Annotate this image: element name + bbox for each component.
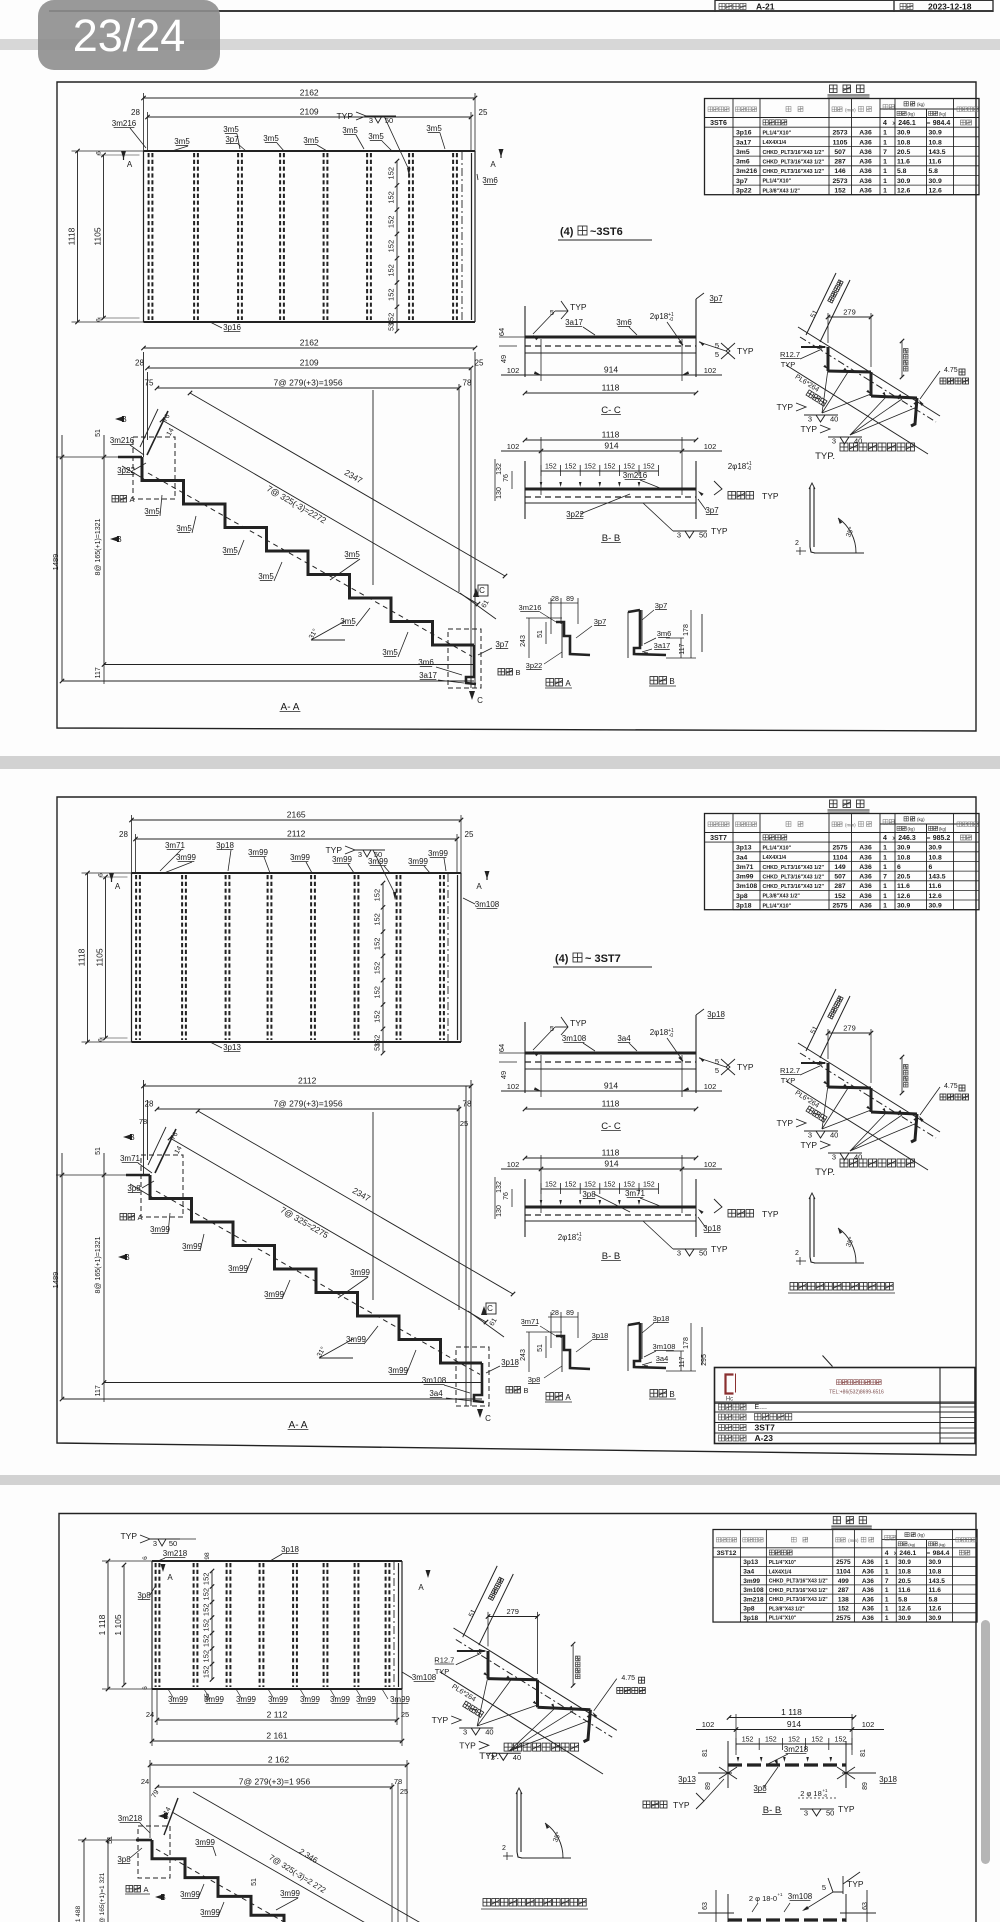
- svg-text:152: 152: [545, 1182, 557, 1189]
- svg-text:3m6: 3m6: [418, 658, 434, 667]
- svg-text:A36: A36: [862, 1578, 874, 1585]
- svg-text:30.9: 30.9: [928, 1615, 941, 1622]
- svg-text:(kg): (kg): [939, 827, 947, 832]
- svg-text:102: 102: [507, 366, 520, 375]
- svg-text:3: 3: [808, 415, 812, 424]
- svg-text:6: 6: [142, 1556, 149, 1560]
- svg-text:152: 152: [387, 264, 396, 277]
- svg-text:TYP: TYP: [781, 1076, 796, 1085]
- svg-text:CHKD_PLT3/16"X43 1/2": CHKD_PLT3/16"X43 1/2": [763, 865, 825, 871]
- svg-text:24: 24: [141, 1777, 149, 1786]
- svg-text:53: 53: [375, 1043, 382, 1051]
- svg-text:138: 138: [838, 1596, 849, 1603]
- svg-text:28: 28: [551, 1310, 559, 1317]
- svg-text:3a4: 3a4: [429, 1389, 443, 1398]
- svg-text:8@ 165(+1)=1321: 8@ 165(+1)=1321: [95, 518, 102, 575]
- svg-text:5: 5: [715, 350, 719, 359]
- svg-text:TYP: TYP: [762, 1209, 779, 1219]
- svg-text:A36: A36: [859, 893, 872, 900]
- svg-text:3: 3: [677, 1249, 681, 1258]
- svg-text:25: 25: [479, 108, 488, 117]
- svg-text:(4): (4): [555, 953, 569, 965]
- svg-text:4.75: 4.75: [944, 367, 958, 374]
- svg-text:A36: A36: [862, 1615, 874, 1622]
- svg-text:1118: 1118: [602, 1099, 620, 1109]
- svg-text:3p13: 3p13: [743, 1559, 758, 1566]
- svg-text:~3ST6: ~3ST6: [590, 226, 623, 238]
- svg-text:3m108: 3m108: [412, 1673, 437, 1682]
- svg-text:TYP: TYP: [762, 491, 779, 501]
- svg-text:3m5: 3m5: [174, 137, 190, 146]
- svg-text:TYP: TYP: [673, 1800, 690, 1810]
- svg-text:40: 40: [485, 1728, 493, 1737]
- svg-text:61: 61: [489, 1317, 499, 1327]
- svg-text:3m108: 3m108: [653, 1342, 676, 1351]
- svg-text:3m99: 3m99: [368, 857, 389, 866]
- svg-text:1: 1: [883, 893, 887, 900]
- svg-text:(kg): (kg): [939, 112, 947, 117]
- svg-text:3: 3: [832, 1153, 836, 1162]
- svg-text:TYP.: TYP.: [815, 451, 835, 462]
- svg-text:A: A: [115, 882, 121, 891]
- svg-text:3m99: 3m99: [736, 874, 754, 881]
- svg-text:(kg): (kg): [939, 1542, 947, 1547]
- svg-text:20.5: 20.5: [897, 149, 910, 156]
- svg-text:24: 24: [146, 1710, 154, 1719]
- svg-text:CHKD_PLT3/16"X43 1/2": CHKD_PLT3/16"X43 1/2": [763, 159, 825, 165]
- svg-text:TYP: TYP: [800, 424, 817, 434]
- svg-text:30.9: 30.9: [929, 845, 942, 852]
- svg-text:3m218: 3m218: [118, 1814, 143, 1823]
- svg-text:152: 152: [387, 191, 396, 204]
- svg-text:3p7: 3p7: [736, 178, 748, 185]
- svg-text:152: 152: [604, 1182, 616, 1189]
- svg-text:3p7: 3p7: [655, 601, 668, 610]
- svg-text:CHKD_PLT3/16"X43 1/2": CHKD_PLT3/16"X43 1/2": [769, 1597, 829, 1603]
- svg-text:149: 149: [834, 864, 846, 871]
- svg-text:102: 102: [704, 366, 717, 375]
- svg-text:3m6: 3m6: [736, 159, 750, 166]
- svg-text:2109: 2109: [300, 358, 319, 368]
- svg-text:2φ18: 2φ18: [728, 462, 747, 471]
- svg-text:A36: A36: [862, 1596, 874, 1603]
- svg-text:-0: -0: [669, 317, 674, 323]
- svg-text:76: 76: [503, 474, 510, 482]
- svg-text:25: 25: [465, 830, 474, 839]
- svg-text:3m108: 3m108: [743, 1587, 764, 1594]
- svg-text:3m108: 3m108: [562, 1034, 587, 1043]
- svg-text:3m99: 3m99: [204, 1695, 225, 1704]
- svg-text:143.5: 143.5: [928, 1578, 945, 1585]
- svg-text:3m5: 3m5: [344, 550, 360, 559]
- svg-text:CHKD_PLT3/16"X43 1/2": CHKD_PLT3/16"X43 1/2": [763, 884, 825, 890]
- svg-text:3m99: 3m99: [248, 848, 269, 857]
- svg-text:3ST7: 3ST7: [755, 1423, 776, 1433]
- svg-text:3m6: 3m6: [657, 629, 672, 638]
- svg-text:152: 152: [202, 1619, 211, 1632]
- svg-text:3m99: 3m99: [300, 1695, 321, 1704]
- svg-text:50: 50: [699, 1249, 707, 1258]
- svg-text:TYP: TYP: [847, 1879, 864, 1889]
- svg-text:152: 152: [373, 1010, 382, 1023]
- svg-text:3m108: 3m108: [422, 1376, 447, 1385]
- svg-text:(4): (4): [560, 226, 574, 238]
- svg-text:3m99: 3m99: [346, 1335, 367, 1344]
- svg-text:50: 50: [826, 1809, 834, 1818]
- svg-text:(mm): (mm): [845, 108, 856, 113]
- svg-text:3m218: 3m218: [163, 1549, 188, 1558]
- svg-text:3ST12: 3ST12: [717, 1550, 737, 1557]
- svg-text:3m5: 3m5: [303, 136, 319, 145]
- svg-text:1105: 1105: [95, 948, 105, 967]
- svg-text:63: 63: [862, 1902, 869, 1910]
- svg-text:B: B: [669, 1390, 674, 1399]
- svg-text:7@ 279(+3)=1 956: 7@ 279(+3)=1 956: [239, 1777, 311, 1787]
- svg-text:3a17: 3a17: [736, 139, 751, 146]
- svg-text:8@ 165(+1)=1 321: 8@ 165(+1)=1 321: [99, 1872, 106, 1922]
- svg-text:102: 102: [702, 1720, 715, 1729]
- svg-text:246.1: 246.1: [898, 120, 916, 127]
- svg-text:3m5: 3m5: [340, 617, 356, 626]
- svg-text:3a17: 3a17: [419, 671, 437, 680]
- svg-text:A36: A36: [859, 883, 872, 890]
- svg-text:178: 178: [683, 624, 690, 636]
- svg-text:8@ 165(+1)=1321: 8@ 165(+1)=1321: [95, 1236, 102, 1293]
- svg-text:A36: A36: [862, 1559, 874, 1566]
- svg-text:75: 75: [145, 379, 154, 388]
- svg-text:1104: 1104: [833, 854, 848, 861]
- svg-text:A36: A36: [862, 1569, 874, 1576]
- svg-text:(kg): (kg): [908, 1542, 916, 1547]
- svg-text:3p7: 3p7: [594, 617, 607, 626]
- svg-text:5.8: 5.8: [929, 168, 939, 175]
- svg-text:12.6: 12.6: [929, 893, 942, 900]
- svg-text:1118: 1118: [602, 430, 620, 440]
- svg-text:3m71: 3m71: [736, 864, 754, 871]
- svg-text:30.9: 30.9: [898, 1559, 911, 1566]
- svg-text:-0: -0: [823, 1793, 827, 1798]
- svg-text:C: C: [479, 586, 485, 595]
- svg-text:3: 3: [369, 116, 373, 125]
- svg-text:3m99: 3m99: [408, 857, 429, 866]
- svg-text:=: =: [927, 1550, 931, 1557]
- svg-text:3p18: 3p18: [743, 1615, 758, 1622]
- svg-text:3m99: 3m99: [332, 855, 353, 864]
- svg-text:A: A: [490, 160, 496, 169]
- svg-text:12.6: 12.6: [897, 188, 910, 195]
- svg-text:C: C: [487, 1304, 493, 1313]
- svg-text:x: x: [892, 835, 896, 842]
- svg-text:3: 3: [808, 1131, 812, 1140]
- svg-text:12.6: 12.6: [898, 1606, 911, 1613]
- svg-text:x: x: [892, 120, 896, 127]
- svg-text:10.8: 10.8: [929, 854, 942, 861]
- svg-text:40: 40: [854, 1153, 862, 1162]
- svg-text:TYP: TYP: [781, 360, 796, 369]
- svg-text:3m108: 3m108: [475, 900, 500, 909]
- svg-text:152: 152: [765, 1737, 777, 1744]
- svg-text:3p8: 3p8: [736, 893, 748, 900]
- svg-text:TYP: TYP: [120, 1531, 137, 1541]
- svg-text:51: 51: [537, 1344, 544, 1352]
- svg-text:C: C: [485, 1414, 491, 1423]
- svg-text:3: 3: [804, 1809, 808, 1818]
- svg-text:PL1/4"X10": PL1/4"X10": [769, 1616, 797, 1622]
- svg-text:3m216: 3m216: [112, 119, 137, 128]
- svg-text:TYP: TYP: [325, 845, 342, 855]
- svg-text:TYP: TYP: [711, 1244, 728, 1254]
- svg-text:3p7: 3p7: [225, 135, 239, 144]
- svg-text:143.5: 143.5: [929, 149, 946, 156]
- svg-text:B: B: [163, 1812, 168, 1821]
- svg-text:3m108: 3m108: [788, 1892, 813, 1901]
- svg-text:A36: A36: [859, 168, 872, 175]
- svg-text:TYP: TYP: [737, 346, 754, 356]
- svg-text:51: 51: [537, 630, 544, 638]
- svg-text:PL1/4"X10": PL1/4"X10": [763, 179, 792, 185]
- svg-text:7@ 279(+3)=1956: 7@ 279(+3)=1956: [273, 1099, 342, 1109]
- svg-text:1 488: 1 488: [75, 1905, 82, 1922]
- svg-text:3m216: 3m216: [110, 436, 135, 445]
- svg-text:3p13: 3p13: [678, 1775, 696, 1784]
- svg-text:30.9: 30.9: [898, 1615, 911, 1622]
- svg-text:2φ18: 2φ18: [558, 1233, 577, 1242]
- svg-text:3m218: 3m218: [743, 1596, 764, 1603]
- svg-text:12.6: 12.6: [897, 893, 910, 900]
- svg-text:7@ 325(-3)=2272: 7@ 325(-3)=2272: [265, 483, 328, 525]
- svg-text:4: 4: [883, 120, 887, 127]
- svg-text:1: 1: [883, 864, 887, 871]
- svg-text:152: 152: [623, 464, 635, 471]
- svg-text:89: 89: [566, 1310, 574, 1317]
- svg-text:6: 6: [96, 151, 103, 155]
- svg-text:152: 152: [604, 464, 616, 471]
- svg-text:(kg): (kg): [917, 817, 925, 822]
- svg-text:3m5: 3m5: [176, 524, 192, 533]
- svg-text:4.75: 4.75: [944, 1083, 958, 1090]
- svg-text:152: 152: [788, 1737, 800, 1744]
- svg-text:B: B: [669, 677, 674, 686]
- svg-text:3p7: 3p7: [495, 640, 509, 649]
- svg-text:984.4: 984.4: [933, 1550, 950, 1557]
- svg-text:A: A: [137, 1213, 142, 1222]
- svg-text:3p13: 3p13: [736, 845, 752, 852]
- svg-text:152: 152: [742, 1737, 754, 1744]
- svg-text:CHKD_PLT3/16"X43 1/2": CHKD_PLT3/16"X43 1/2": [763, 150, 825, 156]
- svg-text:10.8: 10.8: [897, 854, 910, 861]
- svg-text:TYP: TYP: [570, 302, 587, 312]
- svg-text:89: 89: [566, 596, 574, 603]
- svg-text:1104: 1104: [836, 1569, 851, 1576]
- svg-text:12.6: 12.6: [929, 188, 942, 195]
- svg-text:6: 6: [96, 318, 103, 322]
- svg-text:(kg): (kg): [908, 827, 916, 832]
- svg-text:3m99: 3m99: [195, 1838, 216, 1847]
- svg-text:TYP: TYP: [737, 1062, 754, 1072]
- svg-text:7: 7: [883, 149, 887, 156]
- svg-text:2165: 2165: [287, 810, 306, 820]
- svg-text:3p8: 3p8: [117, 1855, 131, 1864]
- svg-text:TYP: TYP: [570, 1018, 587, 1028]
- svg-text:20.5: 20.5: [898, 1578, 911, 1585]
- svg-text:A36: A36: [859, 130, 872, 137]
- svg-text:914: 914: [604, 1159, 618, 1169]
- svg-text:3a17: 3a17: [565, 318, 583, 327]
- svg-text:152: 152: [387, 216, 396, 229]
- svg-text:507: 507: [834, 874, 846, 881]
- svg-text:3p18: 3p18: [592, 1331, 609, 1340]
- svg-text:2162: 2162: [300, 88, 319, 98]
- svg-text:246.3: 246.3: [898, 835, 916, 842]
- svg-text:146: 146: [834, 168, 846, 175]
- svg-text:3p7: 3p7: [709, 294, 723, 303]
- svg-text:TYP: TYP: [432, 1715, 449, 1725]
- svg-text:81: 81: [860, 1749, 867, 1757]
- svg-text:102: 102: [704, 1160, 717, 1169]
- svg-text:3: 3: [358, 850, 362, 859]
- svg-text:10.8: 10.8: [897, 139, 910, 146]
- svg-text:-0: -0: [577, 1237, 582, 1243]
- svg-text:28: 28: [551, 596, 559, 603]
- svg-text:10.8: 10.8: [929, 139, 942, 146]
- svg-text:A: A: [143, 1885, 148, 1894]
- svg-text:2573: 2573: [832, 178, 847, 185]
- svg-text:5.8: 5.8: [898, 1596, 907, 1603]
- svg-text:3p13: 3p13: [223, 1043, 241, 1052]
- svg-text:3p18: 3p18: [216, 841, 234, 850]
- svg-text:279: 279: [506, 1607, 519, 1616]
- svg-text:3p18: 3p18: [736, 903, 752, 910]
- svg-text:3m5: 3m5: [736, 149, 750, 156]
- svg-text:E....: E....: [755, 1404, 768, 1411]
- svg-text:40: 40: [830, 1131, 838, 1140]
- svg-text:1: 1: [883, 854, 887, 861]
- svg-text:TYP.: TYP.: [479, 1751, 499, 1762]
- svg-text:152: 152: [373, 986, 382, 999]
- svg-text:28: 28: [145, 1100, 154, 1109]
- svg-text:3m99: 3m99: [330, 1695, 351, 1704]
- svg-text:28: 28: [131, 108, 140, 117]
- svg-text:40: 40: [513, 1753, 521, 1762]
- svg-text:3m71: 3m71: [625, 1189, 646, 1198]
- svg-text:3p18: 3p18: [281, 1545, 299, 1554]
- svg-text:1105: 1105: [833, 139, 848, 146]
- svg-text:2575: 2575: [832, 845, 847, 852]
- svg-text:117: 117: [95, 1385, 102, 1396]
- svg-text:3m99: 3m99: [176, 853, 197, 862]
- svg-text:TYP: TYP: [776, 402, 793, 412]
- svg-text:507: 507: [834, 149, 846, 156]
- svg-text:4.75: 4.75: [621, 1675, 635, 1682]
- svg-text:1: 1: [883, 168, 887, 175]
- svg-text:132: 132: [496, 1181, 503, 1193]
- svg-text:152: 152: [834, 188, 846, 195]
- svg-text:B: B: [116, 535, 121, 544]
- svg-text:(kg): (kg): [917, 1533, 925, 1538]
- svg-text:279: 279: [843, 308, 856, 317]
- svg-text:3a17: 3a17: [654, 641, 671, 650]
- svg-text:3a4: 3a4: [743, 1569, 754, 1576]
- svg-text:117: 117: [95, 667, 102, 678]
- svg-text:2 φ 18-0: 2 φ 18-0: [749, 1894, 777, 1903]
- svg-text:3p8: 3p8: [743, 1606, 755, 1613]
- svg-text:A: A: [127, 160, 133, 169]
- svg-text:14: 14: [166, 427, 176, 437]
- svg-text:1: 1: [885, 1559, 889, 1566]
- svg-text:914: 914: [604, 1081, 618, 1091]
- svg-text:L4X4X1/4: L4X4X1/4: [769, 1569, 792, 1575]
- svg-text:152: 152: [811, 1737, 823, 1744]
- svg-text:3p8: 3p8: [127, 1184, 141, 1193]
- svg-text:2φ18: 2φ18: [650, 1028, 669, 1037]
- svg-text:1: 1: [883, 178, 887, 185]
- svg-text:CHKD_PLT3/16"X43 1/2": CHKD_PLT3/16"X43 1/2": [763, 169, 825, 175]
- svg-text:A36: A36: [859, 149, 872, 156]
- svg-text:3m5: 3m5: [263, 134, 279, 143]
- svg-text:A: A: [167, 1573, 173, 1582]
- svg-text:3m216: 3m216: [623, 471, 648, 480]
- svg-text:152: 152: [202, 1666, 211, 1679]
- svg-text:x: x: [894, 1550, 898, 1557]
- svg-text:30.9: 30.9: [929, 130, 942, 137]
- svg-text:2: 2: [502, 1845, 506, 1852]
- svg-text:1: 1: [883, 883, 887, 890]
- svg-text:R12.7: R12.7: [780, 1066, 800, 1075]
- svg-text:152: 152: [834, 893, 846, 900]
- svg-text:3p16: 3p16: [736, 130, 752, 137]
- svg-text:CHKD_PLT3/16"X43 1/2": CHKD_PLT3/16"X43 1/2": [769, 1579, 829, 1585]
- svg-text:3m99: 3m99: [280, 1889, 301, 1898]
- svg-text:3p18: 3p18: [501, 1358, 519, 1367]
- svg-text:3m5: 3m5: [342, 126, 358, 135]
- svg-text:(kg): (kg): [917, 102, 925, 107]
- svg-text:1: 1: [883, 845, 887, 852]
- svg-text:TYP: TYP: [776, 1118, 793, 1128]
- svg-text:152: 152: [373, 938, 382, 951]
- svg-text:499: 499: [838, 1578, 849, 1585]
- svg-text:3m71: 3m71: [165, 841, 186, 850]
- svg-text:152: 152: [584, 1182, 596, 1189]
- svg-text:2575: 2575: [836, 1615, 851, 1622]
- svg-text:2 112: 2 112: [267, 1710, 288, 1720]
- svg-text:3p22: 3p22: [117, 466, 135, 475]
- svg-text:=: =: [927, 120, 931, 127]
- svg-text:3m5: 3m5: [144, 507, 160, 516]
- svg-text:152: 152: [835, 1737, 847, 1744]
- svg-text:5.8: 5.8: [928, 1596, 937, 1603]
- svg-text:152: 152: [643, 1182, 655, 1189]
- svg-text:PL3/8"X43 1/2": PL3/8"X43 1/2": [763, 188, 801, 194]
- svg-text:3: 3: [153, 1539, 157, 1548]
- svg-text:40: 40: [854, 437, 862, 446]
- svg-text:30.9: 30.9: [929, 903, 942, 910]
- svg-text:1 105: 1 105: [113, 1614, 123, 1636]
- svg-text:R12.7: R12.7: [780, 350, 800, 359]
- svg-text:102: 102: [507, 1082, 520, 1091]
- svg-text:A: A: [476, 882, 482, 891]
- svg-text:A: A: [129, 495, 134, 504]
- svg-text:3m216: 3m216: [736, 168, 757, 175]
- svg-text:3m99: 3m99: [268, 1695, 289, 1704]
- svg-text:1: 1: [885, 1606, 889, 1613]
- svg-text:CHKD_PLT3/16"X43 1/2": CHKD_PLT3/16"X43 1/2": [769, 1588, 829, 1594]
- svg-text:152: 152: [545, 464, 557, 471]
- svg-text:35°: 35°: [844, 1235, 856, 1248]
- svg-text:B: B: [523, 1386, 528, 1395]
- svg-text:81: 81: [702, 1749, 709, 1757]
- svg-text:11.6: 11.6: [897, 883, 910, 890]
- svg-text:30.9: 30.9: [897, 130, 910, 137]
